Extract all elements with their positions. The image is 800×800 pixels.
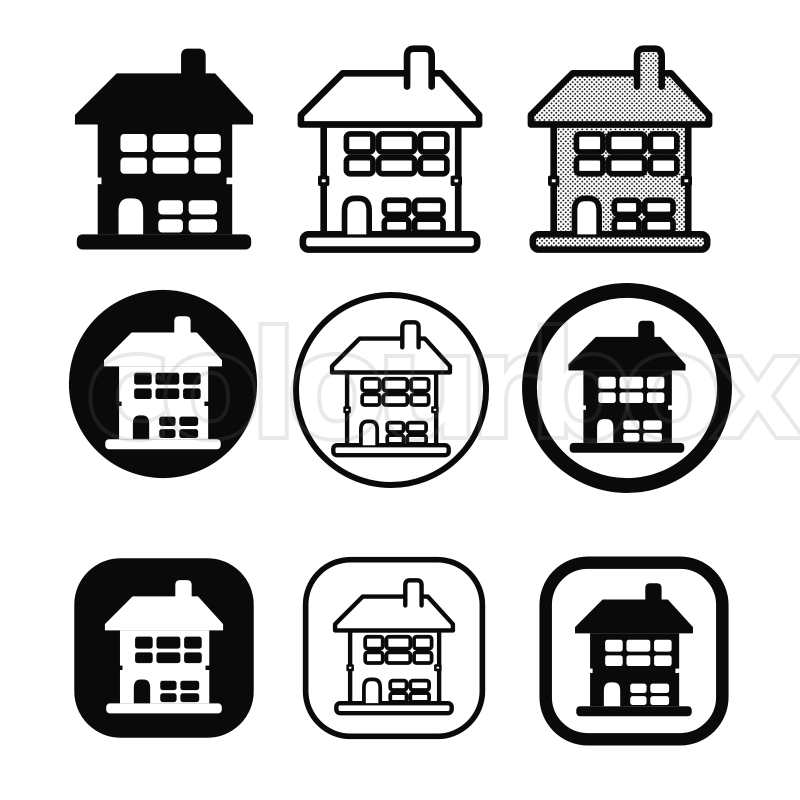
house-icon-rounded-square-outline bbox=[300, 554, 488, 742]
icon-house-circle-outline bbox=[291, 290, 491, 490]
icon-sheet: colourbox bbox=[0, 0, 800, 800]
house-icon-circle-filled bbox=[67, 288, 259, 480]
house-icon-solid bbox=[73, 43, 255, 259]
icon-house-circle-thick bbox=[521, 282, 733, 494]
icon-house-dotted bbox=[529, 43, 711, 259]
house-glyph bbox=[301, 49, 479, 250]
house-icon-circle-thick bbox=[521, 282, 733, 494]
house-icon-rounded-square-filled bbox=[72, 556, 257, 741]
house-glyph bbox=[75, 49, 253, 250]
house-icon-circle-outline bbox=[291, 290, 491, 490]
house-icon-outline bbox=[299, 43, 481, 259]
house-icon-dotted bbox=[529, 43, 711, 259]
icon-house-rounded-square-thick bbox=[538, 555, 730, 747]
icon-house-circle-filled bbox=[67, 288, 259, 480]
icon-house-rounded-square-outline bbox=[300, 554, 488, 742]
icon-house-rounded-square-filled bbox=[72, 556, 257, 741]
icon-house-solid bbox=[73, 43, 255, 259]
icon-house-outline bbox=[299, 43, 481, 259]
house-glyph bbox=[531, 49, 709, 250]
house-icon-rounded-square-thick bbox=[538, 555, 730, 747]
